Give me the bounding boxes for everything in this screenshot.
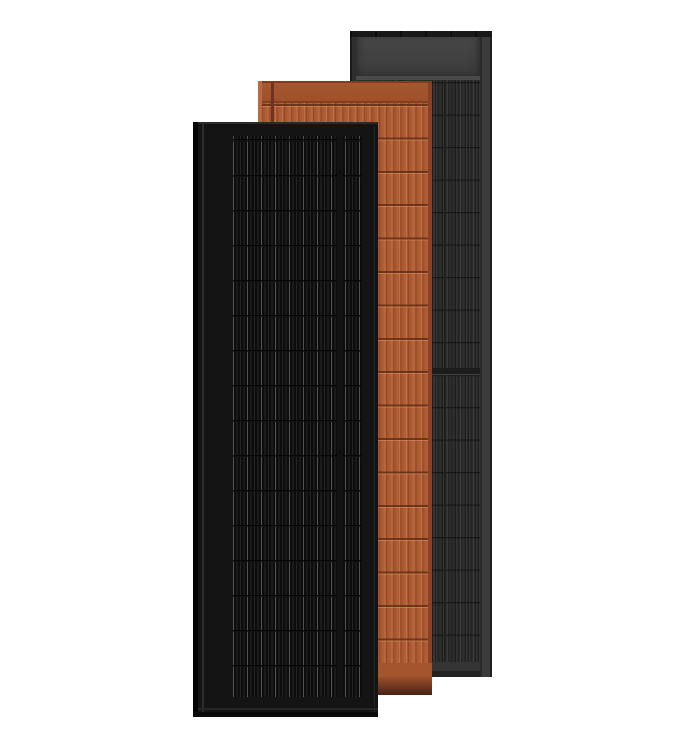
black-panel-bottom-frame	[193, 712, 378, 717]
product-image-stage	[0, 0, 684, 748]
black-panel-cell-grid	[233, 136, 362, 697]
terracotta-panel-right-edge	[428, 83, 432, 695]
terracotta-panel-header-band	[258, 83, 432, 103]
black-panel-left-groove	[202, 124, 204, 717]
black-panel-top-edge	[193, 122, 378, 124]
gray-panel-right-frame	[480, 37, 492, 677]
black-panel-right-groove	[374, 126, 375, 712]
black-panel-column-gap	[337, 136, 343, 697]
black-solar-panel	[193, 122, 378, 717]
black-panel-left-frame	[193, 122, 198, 717]
gray-panel-header-band	[356, 37, 480, 76]
black-panel-bottom-highlight	[198, 708, 378, 710]
